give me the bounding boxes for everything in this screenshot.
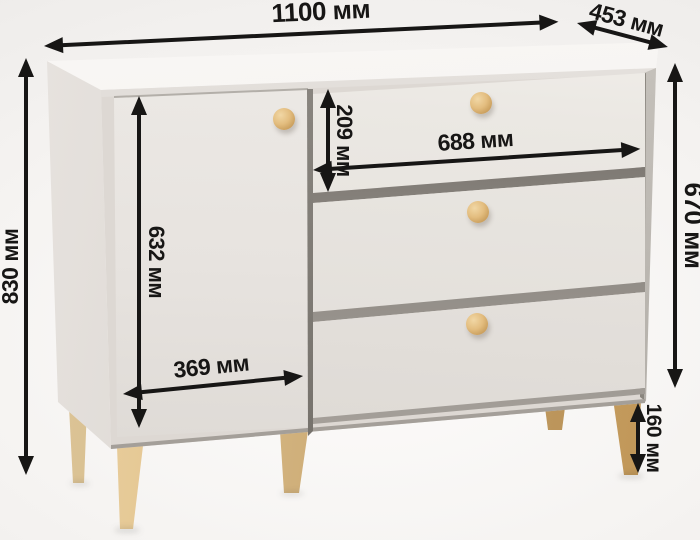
drawer-2 xyxy=(0,0,700,540)
cabinet-right-edge-line xyxy=(0,0,700,540)
leg-shadow xyxy=(114,527,140,533)
drawer-1-knob xyxy=(470,92,492,114)
cabinet-front-frame xyxy=(0,0,700,540)
arrowhead-right-icon xyxy=(283,368,303,386)
cabinet-door xyxy=(0,0,700,540)
dimension-line xyxy=(137,109,141,415)
leg-shadow xyxy=(70,481,90,486)
dimension-drawer-width-label: 688 мм xyxy=(437,125,514,157)
cabinet-right-side xyxy=(0,0,700,540)
dimension-drawer-width: 688 мм xyxy=(313,149,640,170)
drawer-gap-1 xyxy=(0,0,700,540)
dimension-door-width-label: 369 мм xyxy=(172,349,250,383)
leg-front-left xyxy=(0,0,700,540)
leg-back-left xyxy=(0,0,700,540)
drawer-1 xyxy=(0,0,700,540)
arrowhead-bottom-icon xyxy=(131,409,147,428)
arrowhead-bottom-icon xyxy=(667,369,683,388)
dimension-leg-height-label: 160 мм xyxy=(641,404,665,473)
door-drawer-partition xyxy=(0,0,700,540)
cabinet-bottom-edge xyxy=(0,0,700,540)
dimension-top-width-label: 1100 мм xyxy=(271,0,371,29)
furniture-dimension-diagram: 1100 мм 453 мм 830 мм 632 мм 209 мм 688 … xyxy=(0,0,700,540)
arrowhead-top-icon xyxy=(18,58,34,77)
drawer-3-knob xyxy=(466,313,488,335)
leg-middle-back xyxy=(0,0,700,540)
dimension-door-height-label: 632 мм xyxy=(143,226,169,298)
dimension-top-depth: 453 мм xyxy=(577,23,668,47)
dimension-door-width: 369 мм xyxy=(123,376,303,394)
door-top-gap xyxy=(0,0,700,540)
arrowhead-right-icon xyxy=(621,141,641,158)
dimension-line xyxy=(24,71,28,462)
arrowhead-left-icon xyxy=(122,384,142,402)
dimension-top-width: 1100 мм xyxy=(44,22,558,46)
dimension-line xyxy=(673,76,677,375)
leg-front-right xyxy=(0,0,700,540)
arrowhead-bottom-icon xyxy=(18,456,34,475)
drawer-gap-3 xyxy=(0,0,700,540)
door-knob xyxy=(273,108,295,130)
arrowhead-top-icon xyxy=(667,63,683,82)
drawer-gap-2 xyxy=(0,0,700,540)
cabinet-top xyxy=(0,0,700,540)
dimension-body-height-label: 670 мм xyxy=(678,182,700,268)
drawer-3 xyxy=(0,0,700,540)
drawer-2-knob xyxy=(467,201,489,223)
arrowhead-top-icon xyxy=(131,96,147,115)
leg-shadow xyxy=(280,491,304,496)
cabinet-top-edge xyxy=(0,0,700,540)
arrowhead-left-icon xyxy=(312,161,332,178)
leg-shadow xyxy=(618,473,644,479)
arrowhead-right-icon xyxy=(539,14,559,31)
leg-back-right xyxy=(0,0,700,540)
cabinet-left-side xyxy=(0,0,700,540)
dimension-total-height-label: 830 мм xyxy=(0,229,24,305)
arrowhead-left-icon xyxy=(44,37,64,54)
